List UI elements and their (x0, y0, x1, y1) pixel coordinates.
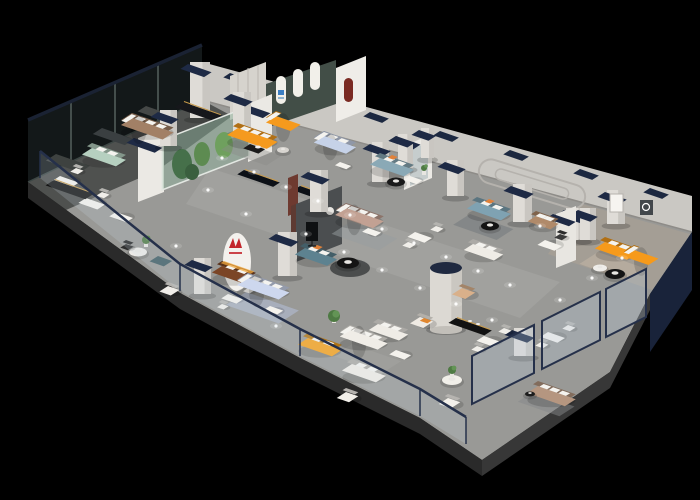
floorplan-3d-render (0, 0, 700, 500)
coffee-table-oval-top (344, 260, 352, 264)
downlight (220, 156, 223, 159)
downlight (538, 224, 541, 227)
downlight (380, 268, 383, 271)
wall-art-frame (610, 194, 623, 212)
terrarium-plant (185, 164, 199, 180)
downlight (476, 269, 479, 272)
cylinder-column-cap (430, 262, 462, 274)
pillar-shade (590, 208, 596, 240)
downlight (412, 241, 415, 244)
round-table-top (449, 377, 456, 381)
downlight (454, 302, 457, 305)
downlight (558, 298, 561, 301)
downlight (284, 185, 287, 188)
floorplan-render (0, 0, 700, 500)
round-table-top (598, 266, 603, 268)
downlight (342, 250, 345, 253)
plant-leaf (424, 164, 428, 168)
display-arch (293, 69, 303, 97)
downlight (252, 170, 255, 173)
downlight (304, 232, 307, 235)
pillar-shade (525, 184, 532, 222)
coffee-table-tray (255, 146, 261, 149)
spider-chair-top (612, 271, 619, 275)
cylinder-column-base (430, 326, 462, 334)
round-table-black-top (393, 179, 399, 182)
downlight (380, 227, 383, 230)
downlight (508, 283, 511, 286)
pillar-shade (458, 160, 464, 196)
downlight (490, 318, 493, 321)
downlight (444, 255, 447, 258)
side-table-top (281, 148, 285, 150)
arch-niche (344, 78, 353, 102)
downlight (316, 199, 319, 202)
downlight (174, 244, 177, 247)
round-table-black-top (487, 223, 493, 226)
terrarium-plant (194, 142, 210, 166)
downlight (590, 276, 593, 279)
display-arch (310, 62, 320, 90)
downlight (418, 286, 421, 289)
downlight (206, 188, 209, 191)
downlight (620, 256, 623, 259)
console-vase (468, 320, 472, 322)
red-brand-logo-text (229, 252, 242, 254)
blue-brand-logo (278, 90, 284, 95)
blue-brand-logo-text (278, 97, 284, 99)
console-vase (476, 323, 480, 325)
plant-leaf (452, 366, 457, 371)
bowl-black-top (528, 392, 532, 394)
pillar-shade (321, 170, 328, 212)
downlight (244, 212, 247, 215)
plant-large-leaf (332, 310, 339, 317)
downlight (348, 213, 351, 216)
pillar-shade (429, 128, 434, 158)
